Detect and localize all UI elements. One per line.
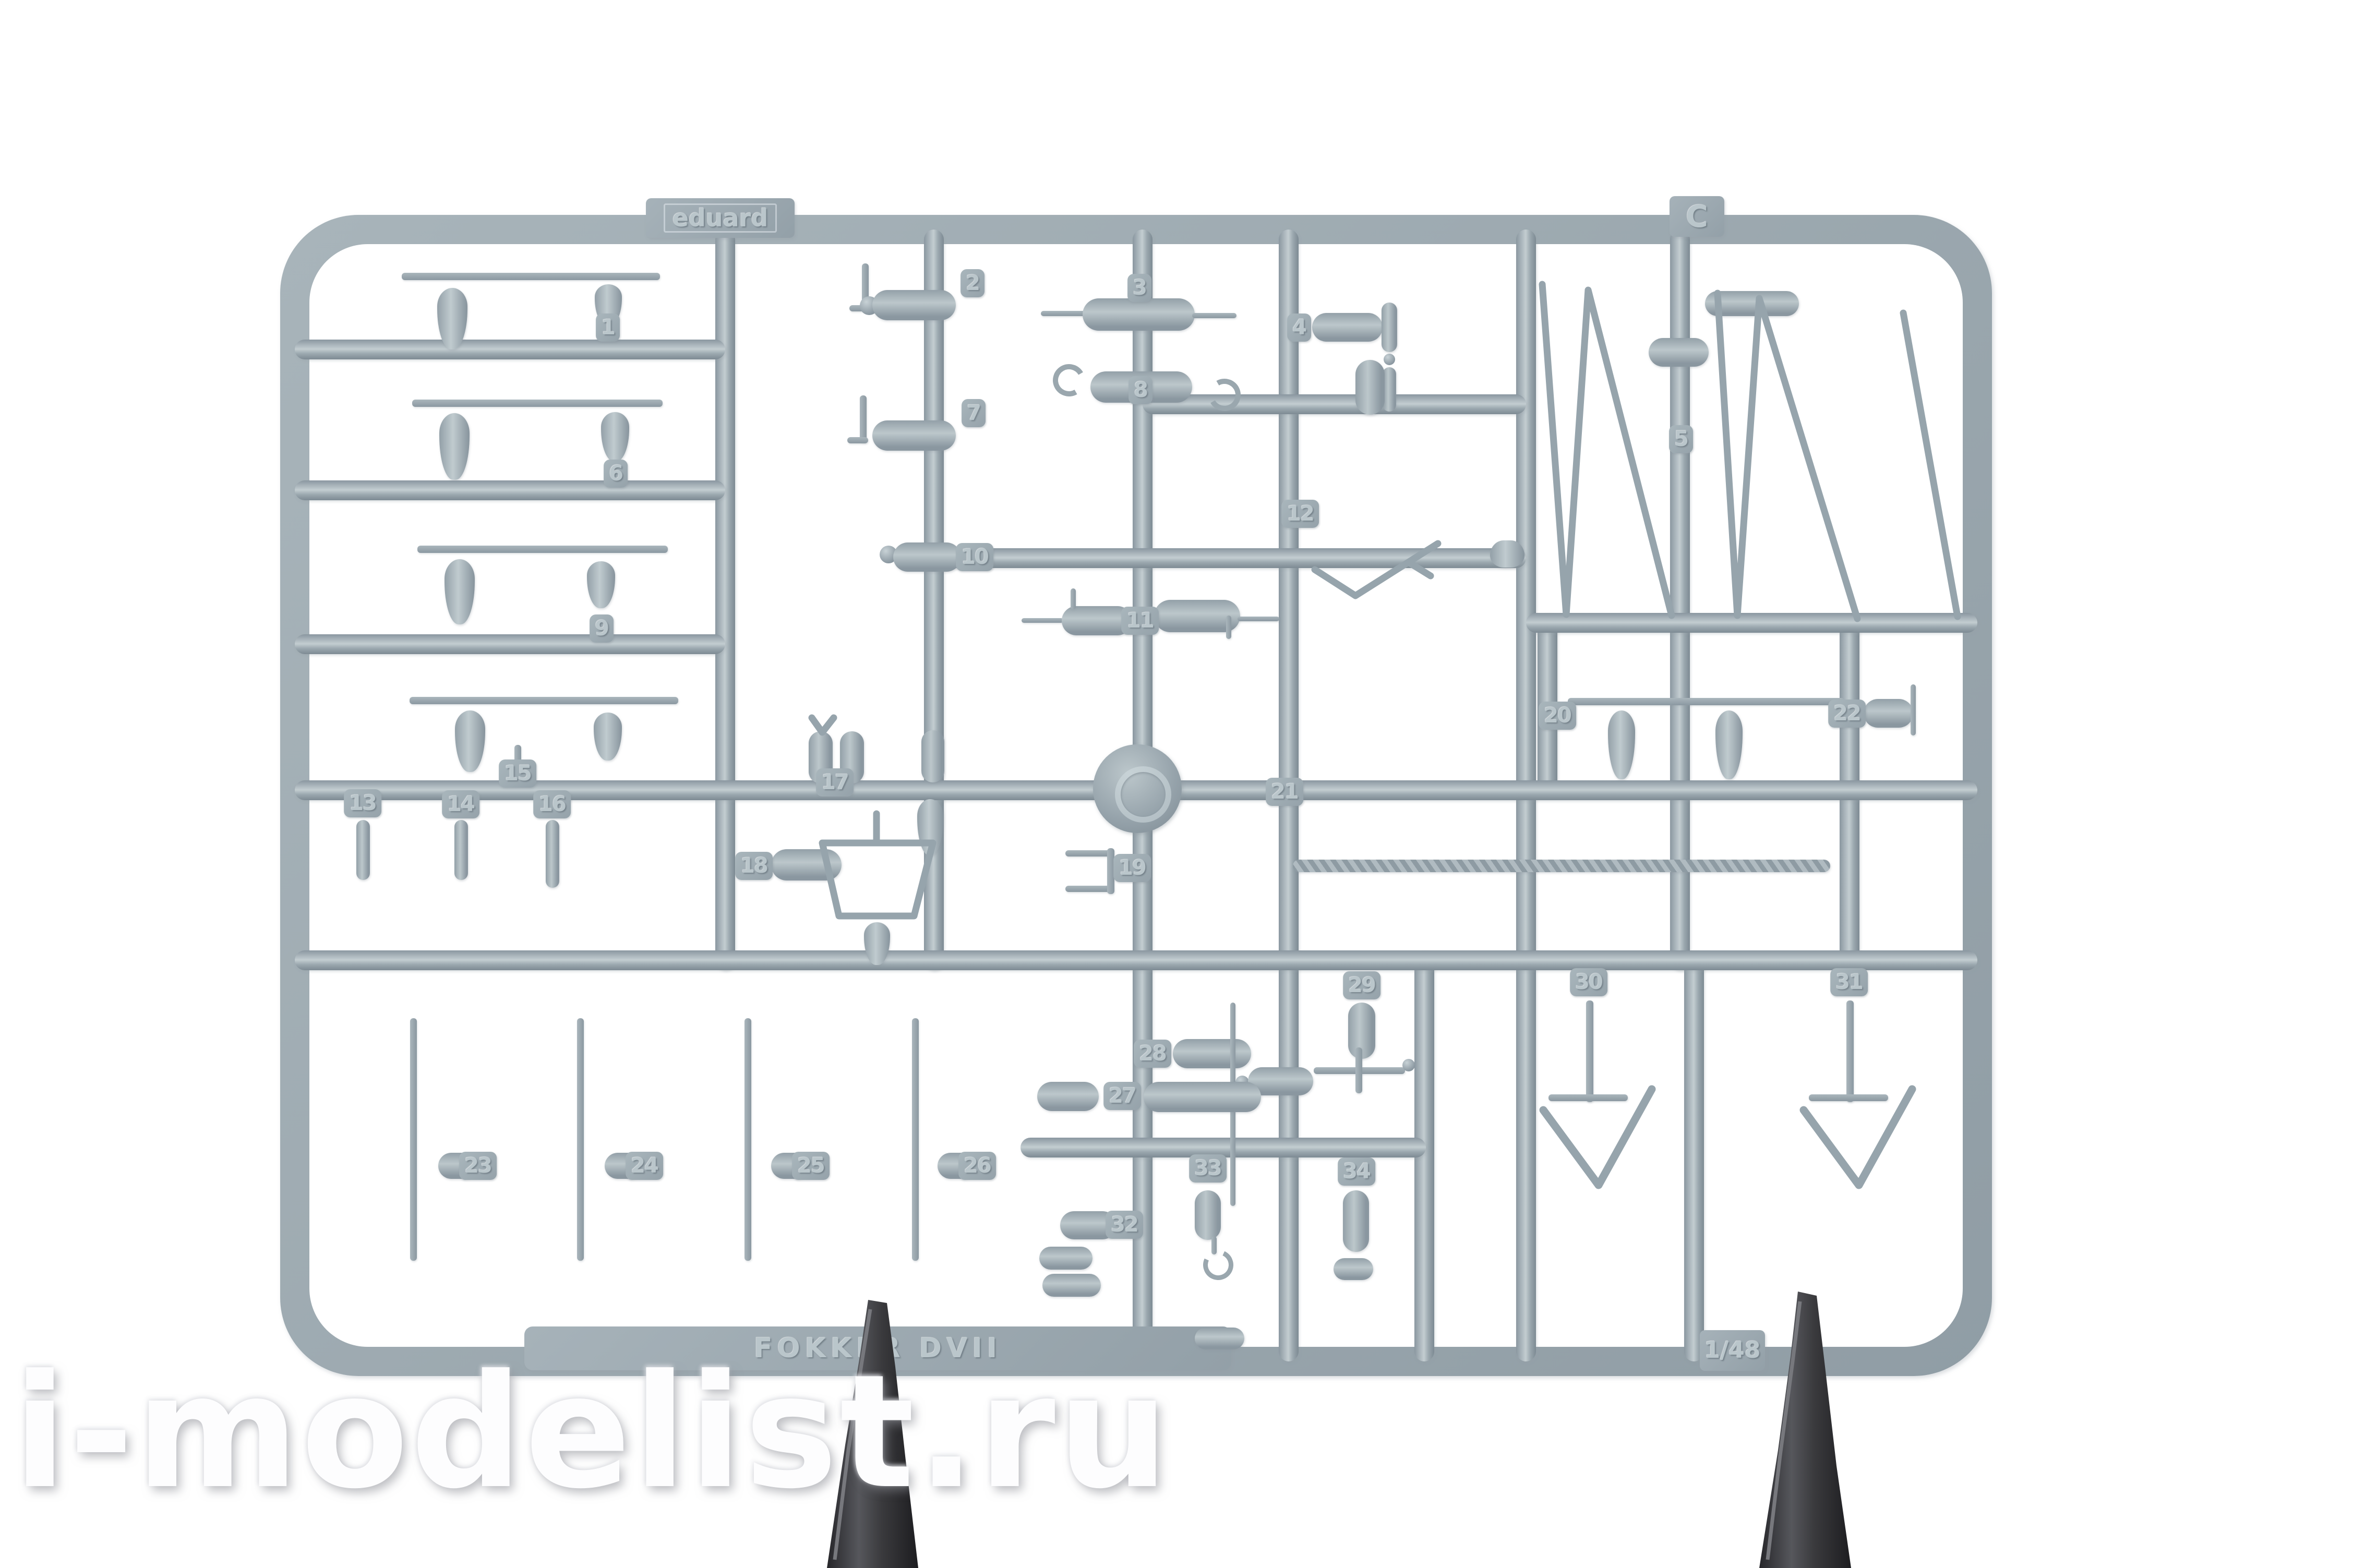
part-number-tag: 31 (1830, 968, 1868, 996)
part-checkmark (1543, 1089, 1652, 1185)
part-number-tag: 22 (1828, 699, 1866, 728)
part-number-tag: 26 (958, 1152, 996, 1180)
watermark-text: i-modelist.ru (13, 1354, 1171, 1511)
part-number-tag: 20 (1539, 702, 1576, 730)
part-number-tag: 13 (344, 789, 381, 817)
part-number-tag: 33 (1189, 1154, 1227, 1183)
part-bent-rod (1315, 544, 1438, 596)
part-number-tag: 6 (604, 460, 628, 488)
part-number-tag: 30 (1570, 968, 1607, 996)
part-number-tag: 12 (1281, 500, 1319, 528)
part-number-tag: 7 (962, 399, 986, 427)
product-photo: eduard C FOKKER DVII 1/48 (0, 0, 2353, 1568)
part-number-tag: 32 (1106, 1211, 1143, 1239)
part-number-tag: 8 (1129, 376, 1153, 404)
part-number-tag: 28 (1134, 1040, 1171, 1068)
part-number-tag: 10 (956, 543, 993, 571)
part-number-tag: 11 (1121, 607, 1159, 635)
part-number-tag: 21 (1266, 778, 1303, 806)
wing-strut-zigzag (1542, 284, 1672, 616)
part-number-tag: 23 (459, 1152, 497, 1180)
part-number-tag: 15 (499, 759, 536, 788)
svg-shapes-layer (0, 0, 2353, 1568)
part-number-tag: 2 (961, 269, 985, 297)
part-number-tag: 25 (792, 1152, 830, 1180)
part-number-tag: 16 (533, 790, 571, 818)
part-number-tag: 1 (596, 313, 620, 342)
part-number-tag: 9 (590, 614, 614, 643)
part-number-tag: 5 (1669, 425, 1693, 453)
part-number-tag: 18 (735, 852, 773, 880)
part-number-tag: 14 (442, 790, 479, 818)
part-v-pin (812, 718, 834, 732)
part-number-tag: 24 (626, 1152, 663, 1180)
part-number-tag: 17 (816, 768, 854, 797)
wing-strut-diagonal (1903, 313, 1958, 617)
part-number-tag: 29 (1343, 971, 1380, 999)
part-checkmark (1804, 1089, 1912, 1185)
part-number-tag: 4 (1287, 313, 1311, 342)
part-number-tag: 19 (1113, 854, 1151, 882)
wing-strut-zigzag (1718, 293, 1857, 619)
part-number-tag: 27 (1103, 1082, 1141, 1110)
part-trapezoid-frame (822, 814, 933, 916)
part-number-tag: 3 (1127, 274, 1151, 302)
part-number-tag: 34 (1338, 1157, 1375, 1186)
